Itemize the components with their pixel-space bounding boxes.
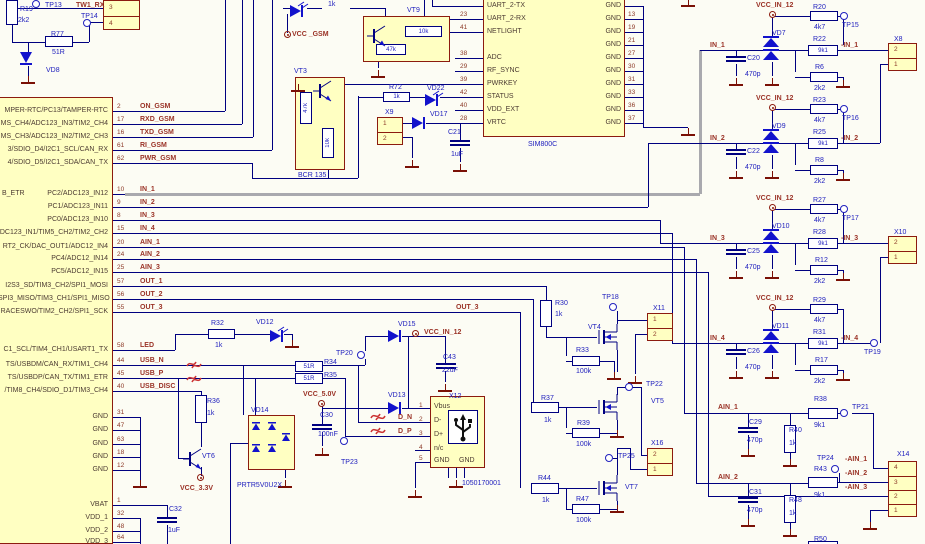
ref-label: R27: [813, 196, 826, 205]
diode-VD22[interactable]: [425, 91, 445, 107]
ref-label: VT7: [625, 483, 638, 492]
net-label: VCC_IN_12: [756, 294, 793, 303]
x10-connector-pin-2[interactable]: 2: [889, 237, 916, 251]
wire: [125, 430, 140, 431]
diode-VD7[interactable]: [762, 36, 780, 62]
net-label: OUT_1: [140, 277, 163, 286]
pin-stub: [113, 111, 125, 112]
ref-label: X9: [385, 108, 394, 117]
capacitor-C25[interactable]: [726, 249, 746, 255]
wire: [546, 337, 597, 338]
wire: [648, 143, 649, 207]
wire: [408, 336, 409, 408]
x9-connector[interactable]: 12: [377, 117, 403, 145]
net-bus-wire: [699, 50, 702, 194]
wire: [520, 312, 521, 488]
pin-name: VDD_EXT: [487, 105, 519, 114]
pin-number: 30: [628, 62, 635, 71]
resistor-R72[interactable]: 1k: [383, 92, 410, 102]
net-label: -AIN_2: [845, 469, 867, 478]
ref-label: VT4: [588, 323, 601, 332]
pin-number: 48: [117, 522, 124, 531]
ref-label: 1k: [542, 496, 549, 505]
net-label: -AIN_1: [845, 455, 867, 464]
pin-number: 42: [460, 88, 467, 97]
top-connector-pin-4[interactable]: 4: [104, 16, 139, 31]
transistor-VT7[interactable]: [597, 475, 619, 501]
wire: [839, 473, 840, 482]
wire: [772, 255, 773, 269]
wire: [175, 334, 176, 350]
diode-VD10[interactable]: [762, 229, 780, 255]
pin-number: 40: [460, 101, 467, 110]
ref-label: 2k2: [18, 16, 29, 25]
resistor-VT3-10k[interactable]: 10k: [322, 128, 334, 158]
pin-stub: [113, 163, 125, 164]
testpoint-TP17[interactable]: [840, 205, 848, 213]
net-label: D_N: [398, 413, 412, 422]
resistor-R44[interactable]: [531, 483, 559, 494]
net-label: VCC_3.3V: [180, 484, 213, 493]
resistor-R30[interactable]: [540, 300, 552, 327]
wire: [838, 243, 888, 244]
ref-label: R32: [211, 319, 224, 328]
wire: [643, 127, 688, 128]
pin-number: 16: [117, 128, 124, 137]
pin-name: GND: [591, 66, 621, 75]
pin-number: 8: [117, 211, 121, 220]
x9-connector-pin-2[interactable]: 2: [378, 132, 402, 146]
ref-label: BCR 135: [298, 171, 326, 180]
resistor-R39[interactable]: [572, 428, 600, 438]
net-label: IN_2: [710, 134, 725, 143]
pin-stub: [455, 6, 483, 7]
resistor-R29[interactable]: [810, 304, 838, 314]
pin-number: 37: [628, 114, 635, 123]
x11-connector-pin-1[interactable]: 1: [648, 314, 672, 328]
x14-connector-pin-2[interactable]: 2: [889, 490, 916, 504]
pin-stub: [455, 71, 483, 72]
net-label: -IN_3: [841, 234, 858, 243]
ref-label: 100k: [576, 367, 591, 376]
ref-label: X14: [897, 450, 909, 459]
ref-label: R31: [813, 328, 826, 337]
pin-name: PWRKEY: [487, 79, 517, 88]
wire: [283, 8, 290, 9]
wire: [125, 457, 140, 458]
wire: [125, 286, 546, 287]
wire: [403, 137, 412, 138]
wire: [167, 505, 168, 517]
resistor-R37[interactable]: [531, 402, 559, 413]
pin-stub: [455, 32, 483, 33]
ref-label: X11: [653, 304, 665, 313]
pin-name: RF_SYNC: [487, 66, 520, 75]
pin-stub: [625, 32, 643, 33]
resistor-R22[interactable]: 9k1: [808, 45, 838, 56]
pin-name: n/c: [434, 444, 443, 453]
ref-label: R25: [813, 128, 826, 137]
wire: [648, 143, 808, 144]
pin-stub: [113, 259, 125, 260]
wire: [415, 462, 416, 488]
ref-label: R47: [576, 495, 589, 504]
pin-stub: [455, 19, 483, 20]
wire: [708, 272, 709, 496]
testpoint-TP20[interactable]: [357, 351, 365, 359]
pin-number: 25: [117, 263, 124, 272]
wire: [533, 299, 534, 407]
wire: [125, 272, 708, 273]
capacitor-C21[interactable]: [450, 140, 470, 146]
x14-connector[interactable]: 4321: [888, 461, 917, 517]
pin-stub: [455, 58, 483, 59]
diff-pair-icon: [370, 409, 386, 421]
pin-stub: [113, 391, 125, 392]
pin-number: 17: [117, 115, 124, 124]
pin-stub: [113, 378, 125, 379]
diode-VD8[interactable]: [20, 52, 32, 66]
ref-label: C30: [320, 411, 333, 420]
capacitor-C26[interactable]: [726, 349, 746, 355]
wire: [772, 62, 773, 76]
wire: [125, 542, 140, 543]
pin-name: GND: [434, 456, 450, 465]
diode-VD9[interactable]: [762, 129, 780, 155]
ref-label: TP25: [618, 452, 635, 461]
resistor-R28[interactable]: 9k1: [808, 238, 838, 249]
diode-VD15[interactable]: [388, 330, 402, 342]
testpoint-TP13[interactable]: [32, 0, 40, 8]
resistor-R33[interactable]: [572, 356, 600, 366]
ref-label: 100nF: [318, 430, 338, 439]
ref-label: TP18: [602, 293, 619, 302]
ref-label: 470p: [745, 363, 761, 372]
pin-name: VDD_3: [0, 537, 108, 544]
pin-stub: [113, 365, 125, 366]
wire: [28, 66, 29, 76]
x10-connector-pin-1[interactable]: 1: [889, 251, 916, 265]
wire: [201, 423, 202, 447]
wire: [328, 170, 329, 178]
resistor-VT3-47k[interactable]: 47k: [300, 92, 312, 124]
wire: [125, 124, 242, 125]
wire: [635, 334, 636, 374]
ref-label: 100k: [576, 440, 591, 449]
ref-label: VD22: [427, 84, 445, 93]
resistor-R32[interactable]: [208, 329, 235, 339]
wire: [125, 417, 140, 418]
wire: [566, 337, 567, 356]
testpoint-TP18[interactable]: [609, 303, 617, 311]
pin-stub: [113, 518, 125, 519]
resistor-R23[interactable]: [810, 104, 838, 114]
net-bus-wire: [125, 193, 700, 196]
wire: [775, 209, 810, 210]
resistor-R36[interactable]: [195, 395, 207, 423]
diode-VD14-d2[interactable]: [252, 444, 261, 453]
ref-label: R8: [815, 156, 824, 165]
ref-label: 470p: [747, 436, 763, 445]
pin-number: 33: [628, 88, 635, 97]
pin-stub: [455, 123, 483, 124]
wire: [140, 417, 141, 480]
ref-label: 1k: [207, 409, 214, 418]
ref-label: VD17: [430, 110, 448, 119]
pin-number: 5: [419, 454, 423, 463]
pin-number: 55: [117, 303, 124, 312]
wire: [641, 387, 642, 455]
x11-connector-pin-2[interactable]: 2: [648, 328, 672, 342]
wire: [546, 286, 547, 300]
x16-connector[interactable]: 21: [647, 448, 673, 476]
wire: [852, 413, 873, 414]
pin-stub: [113, 470, 125, 471]
wire: [873, 468, 888, 469]
wire: [795, 50, 796, 72]
top-connector-pin-3[interactable]: 3: [104, 1, 139, 16]
resistor-R43[interactable]: [808, 477, 838, 488]
ref-label: R39: [577, 419, 590, 428]
capacitor-C22[interactable]: [726, 149, 746, 155]
x16-connector-pin-1[interactable]: 1: [648, 463, 672, 477]
pin-number: 1: [117, 496, 121, 505]
x11-connector[interactable]: 12: [647, 313, 673, 341]
diode-VD14-d4[interactable]: [268, 444, 277, 453]
testpoint-TP15[interactable]: [840, 12, 848, 20]
ref-label: VD12: [256, 318, 274, 327]
testpoint-TP24[interactable]: [831, 465, 839, 473]
resistor-R20[interactable]: [810, 11, 838, 21]
x14-connector-pin-1[interactable]: 1: [889, 504, 916, 518]
ref-label: R30: [555, 299, 568, 308]
resistor-R19[interactable]: [6, 0, 18, 25]
pin-stub: [113, 457, 125, 458]
wire: [880, 257, 881, 343]
testpoint-TP25[interactable]: [605, 454, 613, 462]
pin-name: GND: [0, 412, 108, 421]
wire: [772, 355, 773, 369]
wire: [684, 413, 810, 414]
diode-VD14-d3[interactable]: [268, 422, 277, 431]
wire: [546, 327, 547, 337]
diode-LED-top[interactable]: [290, 2, 310, 18]
resistor-R31[interactable]: 9k1: [808, 338, 838, 349]
pin-name: GND: [591, 53, 621, 62]
wire: [358, 97, 383, 98]
wire: [613, 458, 617, 459]
ref-label: TP15: [842, 21, 859, 30]
pin-name: D-: [434, 416, 441, 425]
pin-name: VDD_2: [0, 526, 108, 535]
x10-connector[interactable]: 21: [888, 236, 917, 264]
pin-number: 18: [117, 448, 124, 457]
pin-stub: [455, 110, 483, 111]
x14-connector-pin-4[interactable]: 4: [889, 462, 916, 476]
transistor-VT9[interactable]: [367, 24, 389, 48]
ref-label: R28: [813, 228, 826, 237]
pin-number: 58: [117, 341, 124, 350]
x9-connector-pin-1[interactable]: 1: [378, 118, 402, 132]
pin-number: 15: [117, 224, 124, 233]
pin-name: VBAT: [0, 500, 108, 509]
resistor-R8[interactable]: [810, 165, 838, 175]
pin-number: 31: [117, 408, 124, 417]
pin-name: I2S3_SD/TIM3_CH2/SPI1_MOSI: [0, 281, 108, 290]
transistor-VT3[interactable]: [313, 79, 335, 103]
ref-label: VD10: [772, 222, 790, 231]
net-label: VCC_IN_12: [756, 1, 793, 10]
ref-label: TP21: [852, 403, 869, 412]
resistor-R17[interactable]: [810, 365, 838, 375]
diode-VD17[interactable]: [412, 117, 426, 129]
pin-stub: [113, 272, 125, 273]
schematic-canvas[interactable]: 341221211221432151R51R1k10k47k47k10k9k19…: [0, 0, 925, 544]
resistor-R27[interactable]: [810, 204, 838, 214]
ref-label: C26: [747, 347, 760, 356]
ref-label: C22: [747, 147, 760, 156]
wire: [617, 420, 618, 430]
wire: [125, 220, 660, 221]
pin-name: TS/USBDM/CAN_RX/TIM1_CH4: [0, 360, 108, 369]
pin-stub: [625, 123, 643, 124]
ref-label: VT3: [294, 67, 307, 76]
wire: [870, 510, 871, 522]
resistor-R12[interactable]: [810, 265, 838, 275]
ref-label: 1k: [544, 416, 551, 425]
capacitor-C31[interactable]: [738, 497, 758, 503]
diode-VD14-d5[interactable]: [282, 433, 291, 442]
pin-name: NETLIGHT: [487, 27, 522, 36]
wire: [672, 343, 808, 344]
ref-label: R40: [789, 426, 802, 435]
wire: [125, 518, 140, 519]
pin-name: MS_CH4/ADC123_IN3/TIM2_CH4: [0, 119, 108, 128]
x16-connector-pin-2[interactable]: 2: [648, 449, 672, 463]
diode-VD11[interactable]: [762, 329, 780, 355]
ref-label: 1050170001: [462, 479, 501, 488]
resistor-R34[interactable]: 51R: [295, 361, 323, 372]
testpoint-TP22[interactable]: [625, 383, 633, 391]
capacitor-C29[interactable]: [738, 427, 758, 433]
wire: [838, 343, 874, 344]
wire: [617, 448, 630, 449]
capacitor-C20[interactable]: [726, 56, 746, 62]
net-label: VCC_IN_12: [424, 328, 461, 337]
ref-label: R12: [815, 256, 828, 265]
pin-number: 27: [628, 49, 635, 58]
pin-name: PC2/ADC123_IN12: [0, 189, 108, 198]
testpoint-TP21[interactable]: [840, 409, 848, 417]
wire: [617, 311, 618, 324]
x14-connector-pin-3[interactable]: 3: [889, 476, 916, 490]
diode-VD12[interactable]: [270, 327, 290, 343]
x8-connector-pin-1[interactable]: 1: [889, 58, 916, 72]
x8-connector-pin-2[interactable]: 2: [889, 44, 916, 58]
resistor-R47[interactable]: [572, 504, 600, 514]
net-label: RI_GSM: [140, 141, 167, 150]
wire: [775, 109, 810, 110]
net-label: VCC_5.0V: [303, 390, 336, 399]
ref-label: PRTR5V0U2X: [237, 481, 282, 490]
pin-number: 41: [460, 23, 467, 32]
power-symbol-VCC_IN_12-3: [769, 204, 776, 211]
testpoint-TP23[interactable]: [340, 437, 348, 445]
ref-label: 470p: [747, 506, 763, 515]
pin-number: 19: [628, 23, 635, 32]
wire: [252, 163, 253, 178]
net-label: OUT_3: [140, 303, 163, 312]
wire: [272, 0, 273, 150]
net-label: -AIN_3: [845, 483, 867, 492]
ref-label: R33: [576, 346, 589, 355]
ref-label: R72: [389, 83, 402, 92]
capacitor-C32[interactable]: [157, 517, 177, 523]
ref-label: 1uF: [168, 526, 180, 535]
pin-name: GND: [591, 14, 621, 23]
ref-label: C25: [747, 247, 760, 256]
ref-label: 1k: [789, 439, 796, 448]
pin-name: GND: [0, 465, 108, 474]
top-connector[interactable]: 34: [103, 0, 140, 30]
wire: [795, 270, 810, 271]
transistor-VT5[interactable]: [597, 394, 619, 420]
ref-label: TP17: [842, 214, 859, 223]
net-label: VCC_IN_12: [756, 194, 793, 203]
diode-VD14-d1[interactable]: [252, 422, 261, 431]
net-label: -IN_2: [841, 134, 858, 143]
ref-label: R44: [538, 474, 551, 483]
ref-label: R17: [815, 356, 828, 365]
net-label: IN_1: [140, 185, 155, 194]
wire: [660, 243, 808, 244]
ref-label: VT9: [407, 6, 420, 15]
ref-label: 470p: [745, 70, 761, 79]
testpoint-TP16[interactable]: [840, 105, 848, 113]
net-label: D_P: [398, 427, 412, 436]
wire: [403, 123, 412, 124]
pin-number: 4: [419, 443, 423, 452]
wire: [736, 357, 737, 369]
net-label: AIN_3: [140, 263, 160, 272]
ref-label: R77: [51, 30, 64, 39]
resistor-R35[interactable]: 51R: [295, 373, 323, 384]
ref-label: VD13: [388, 391, 406, 400]
pin-stub: [625, 19, 643, 20]
net-label: USB_DISC: [140, 382, 175, 391]
ref-label: X8: [894, 35, 903, 44]
wire: [125, 299, 533, 300]
x8-connector[interactable]: 21: [888, 43, 917, 71]
resistor-R6[interactable]: [810, 72, 838, 82]
pin-number: 1: [419, 401, 423, 410]
wire: [225, 0, 226, 111]
diff-pair-icon: [370, 423, 386, 435]
pin-number: 62: [117, 154, 124, 163]
ref-label: 1k: [215, 341, 222, 350]
pin-number: 2: [419, 415, 423, 424]
resistor-R38[interactable]: [808, 408, 838, 419]
testpoint-TP19[interactable]: [870, 339, 878, 347]
pin-stub: [113, 247, 125, 248]
pin-stub: [113, 312, 125, 313]
ref-label: 2k2: [814, 377, 825, 386]
resistor-R25[interactable]: 9k1: [808, 138, 838, 149]
power-symbol-VCC_5.0V: [318, 400, 325, 407]
net-label: AIN_2: [718, 473, 738, 482]
pin-number: 36: [628, 101, 635, 110]
resistor-VT9-10k[interactable]: 10k: [405, 26, 442, 37]
